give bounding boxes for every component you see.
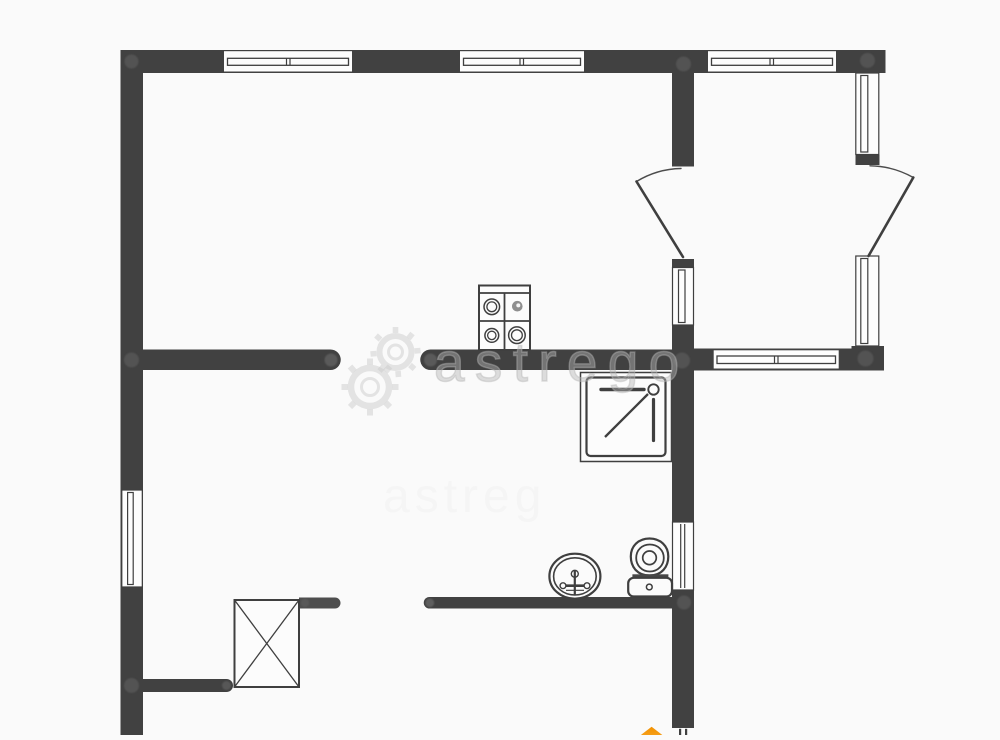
svg-text:astrego: astrego [434, 331, 690, 393]
svg-text:astreg: astreg [383, 470, 546, 523]
